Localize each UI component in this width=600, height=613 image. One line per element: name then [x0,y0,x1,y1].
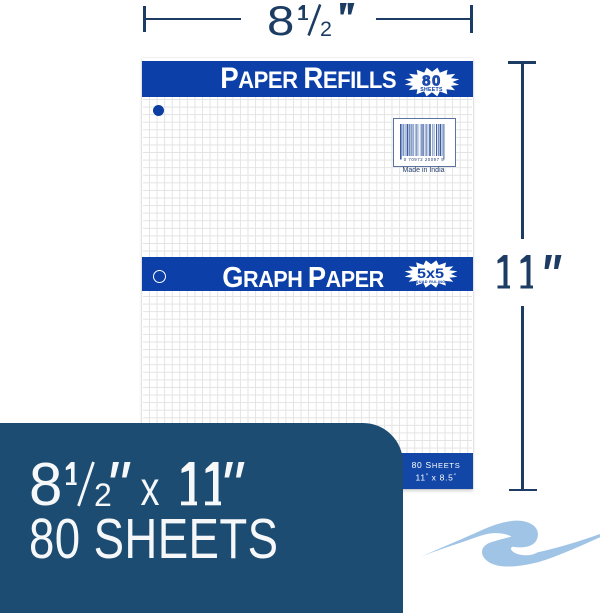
svg-text:x: x [141,463,160,510]
svg-text:5x5: 5x5 [417,266,445,281]
svg-text:8: 8 [29,458,62,510]
svg-text:8: 8 [267,0,294,42]
svg-text:2: 2 [320,17,332,41]
svg-text:SHEETS: SHEETS [420,86,443,92]
svg-text:QUAD RULING: QUAD RULING [415,280,445,284]
svg-text:0 70972 20097 5: 0 70972 20097 5 [404,157,445,162]
